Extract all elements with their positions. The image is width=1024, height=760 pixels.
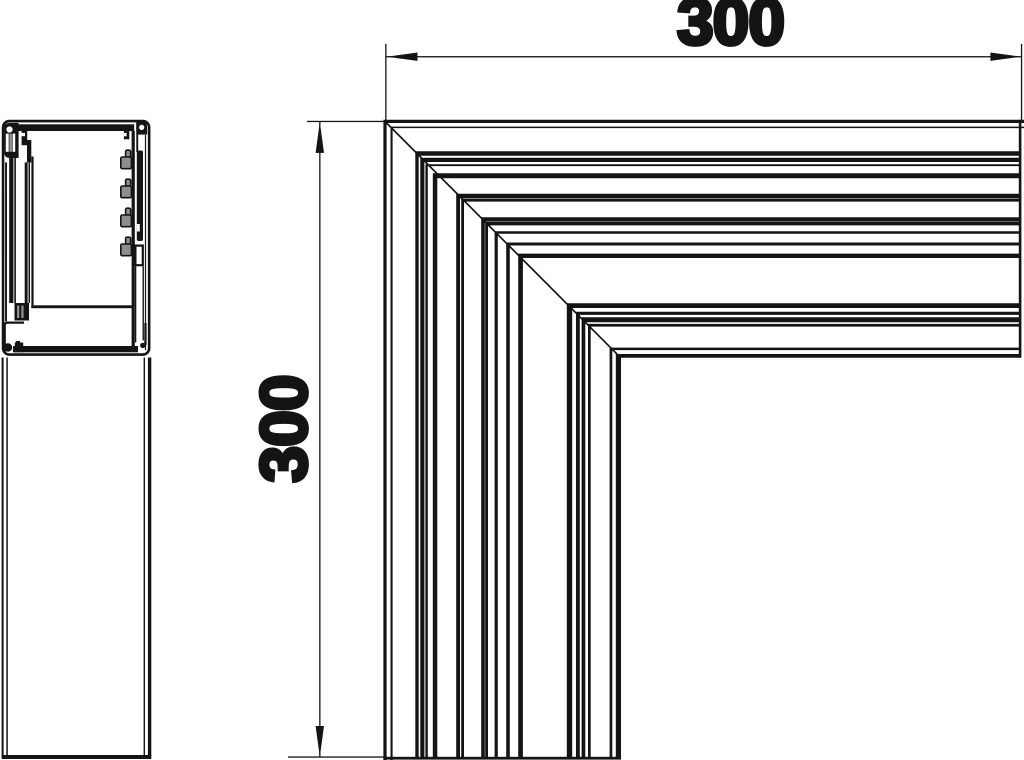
svg-text:300: 300: [247, 375, 321, 482]
svg-text:300: 300: [677, 0, 784, 58]
